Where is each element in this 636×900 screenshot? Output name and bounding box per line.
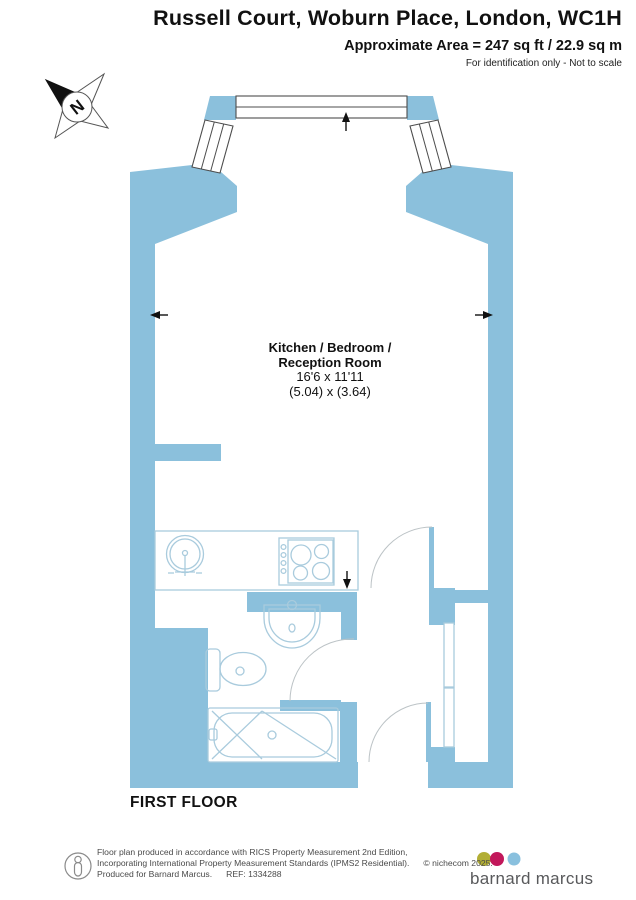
closet-door-panel [444,688,454,747]
bathroom-door-arc [290,639,354,701]
entrance-door-leaf [426,702,431,762]
hob-burner [291,545,311,565]
room-label: Kitchen / Bedroom / Reception Room 16'6 … [230,341,430,399]
tub-inner [214,713,332,757]
walls [130,96,513,788]
footer-line2-row: Incorporating International Property Mea… [97,858,469,869]
brand-dot-blue [508,853,521,866]
wall-bay-corner-left [204,96,236,120]
brand-name: barnard marcus [470,869,593,889]
tub-drain [268,731,276,739]
tub-fold-line [262,711,336,759]
wall-basin-right [341,610,357,640]
floor-plan-graphic: N [0,0,636,900]
tub-tap [209,729,217,740]
area-line: Approximate Area = 247 sq ft / 22.9 sq m [153,38,622,54]
hob-knob [281,561,286,566]
sink-tap-base [183,551,188,556]
room-dims-imperial: 16'6 x 11'11 [230,370,430,385]
hob-knob [281,569,286,574]
closet-door-panel [444,623,454,687]
footer-copyright: © nichecom 2025. [423,858,492,869]
footer-line2: Incorporating International Property Mea… [97,858,409,869]
basin-drain [289,624,295,632]
wall-bay-corner-right [407,96,439,120]
wall-nib-left [155,444,221,461]
wall-bathroom-mid [280,700,341,711]
hob-burner [315,545,329,559]
hob [279,538,334,585]
kitchen-sink [167,536,204,577]
kitchen-counter [155,531,358,590]
header: Russell Court, Woburn Place, London, WC1… [153,5,622,70]
icon-ring [65,853,91,879]
footer-line1: Floor plan produced in accordance with R… [97,847,469,858]
room-dims-metric: (5.04) x (3.64) [230,385,430,400]
floorplan-page: N Russell Court, Woburn Place, London, W… [0,0,636,900]
wall-hall-top [455,590,488,603]
toilet-flush [236,667,244,675]
hob-knob [281,553,286,558]
arrow-head [343,579,351,589]
doors [290,527,434,762]
compass: N [46,74,108,138]
room-name-line2: Reception Room [230,356,430,371]
page-title: Russell Court, Woburn Place, London, WC1… [153,5,622,31]
disclaimer: For identification only - Not to scale [153,58,622,70]
wall-tub-right [340,702,357,788]
main-room-door-leaf [429,527,434,588]
footer-line3: Produced for Barnard Marcus. [97,869,212,880]
bathroom-fixtures [206,601,338,763]
closet [444,623,454,747]
hob-burner [294,566,308,580]
toilet [206,649,266,691]
bathtub [208,708,338,762]
footer-ref: REF: 1334288 [226,869,281,880]
wall-right [406,165,513,788]
basin-bowl [269,609,315,642]
nichecom-icon [65,853,91,879]
wall-bottom-left [130,762,358,788]
measure-arrow-down [343,571,351,589]
hob-knob [281,545,286,550]
icon-person-head [75,856,81,862]
room-name-line1: Kitchen / Bedroom / [230,341,430,356]
toilet-cistern [206,649,220,691]
floor-label: FIRST FLOOR [130,794,238,812]
entrance-door-arc [369,703,428,762]
footer-disclaimer: Floor plan produced in accordance with R… [97,847,469,880]
hob-burner [313,563,330,580]
wall-bottom-right [428,762,513,788]
wall-hall-door-chunk [429,588,455,625]
main-room-door-arc [371,527,432,588]
icon-person-body [75,863,82,876]
tub-outline [208,708,338,762]
footer-line3-row: Produced for Barnard Marcus. REF: 133428… [97,869,469,880]
wall-closet-stub-bottom [429,747,455,764]
